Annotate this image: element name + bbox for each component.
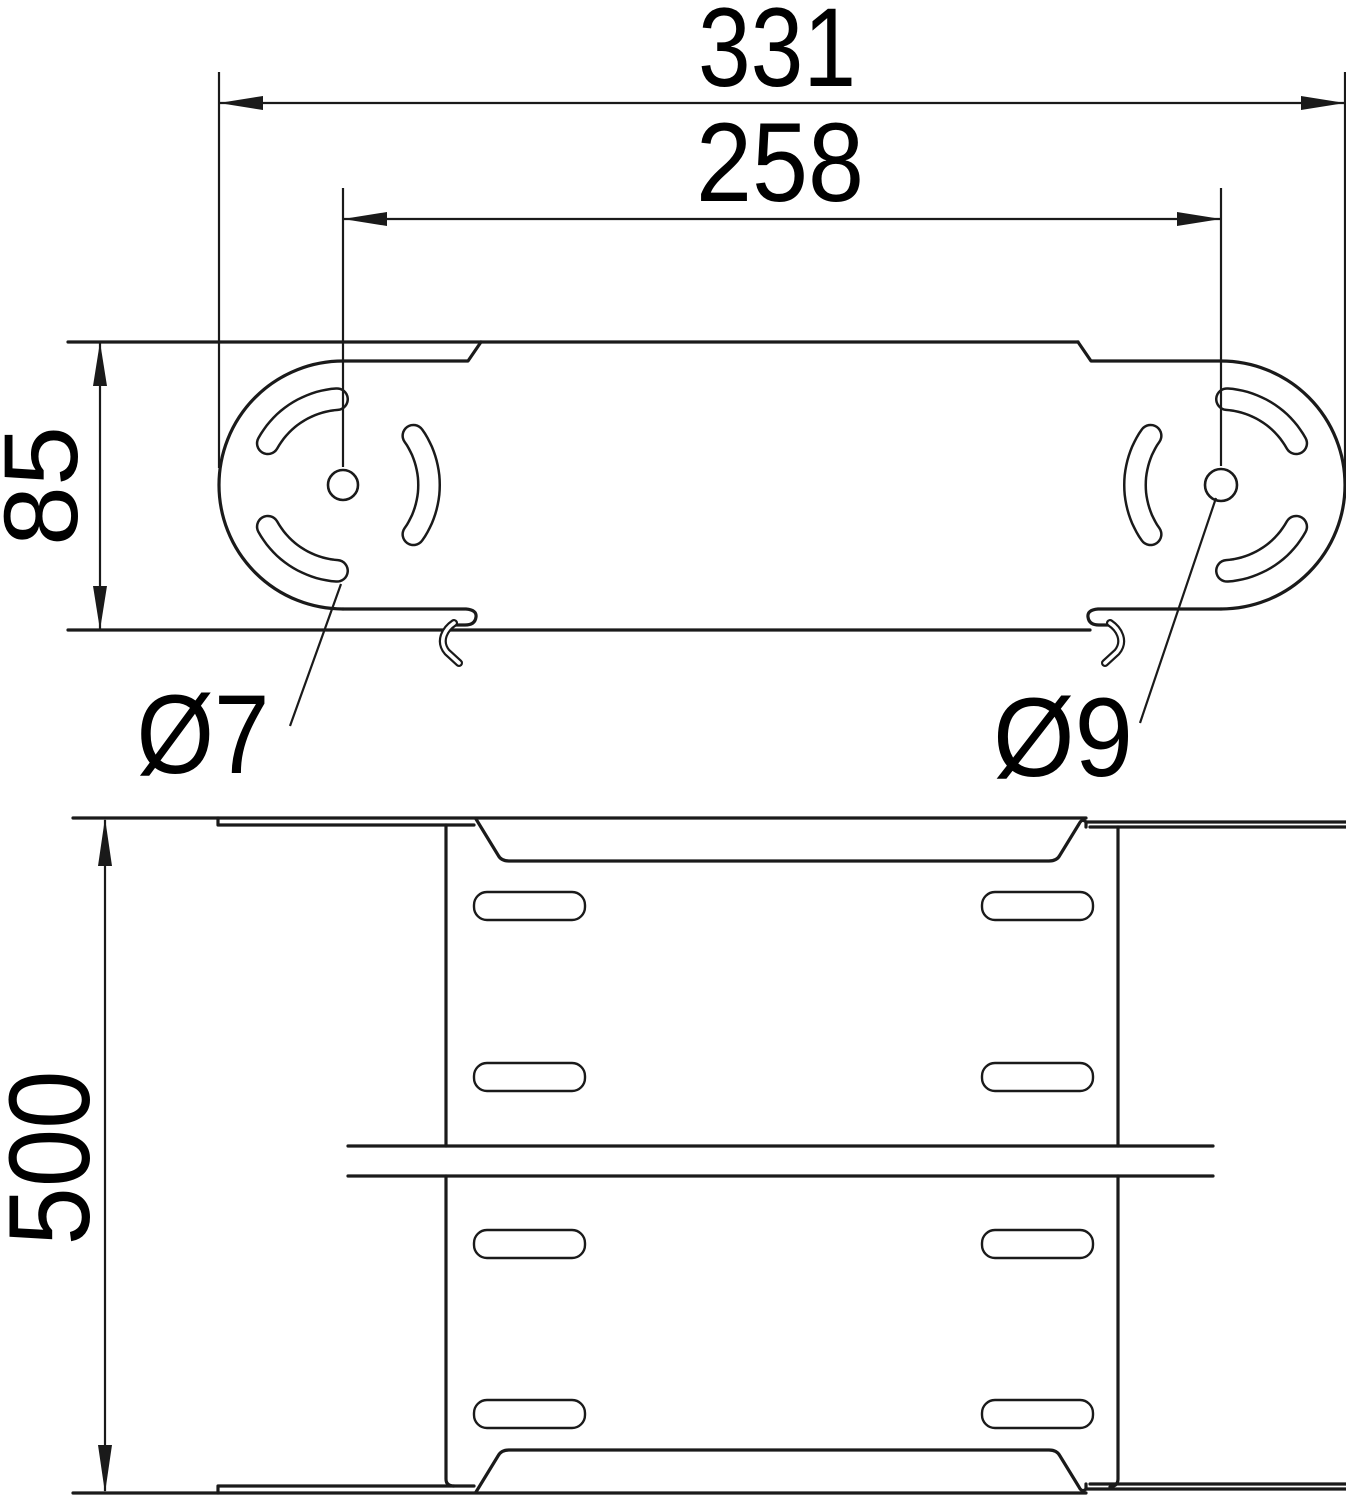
arrowhead-85-top [93,342,107,386]
arrowhead-258-left [343,212,387,226]
left-cap-slot-right-inner [413,436,429,535]
label-overall-length: 331 [698,0,856,110]
perforation-slot [982,1400,1093,1428]
tray-top-right-strip [1086,822,1346,827]
left-pivot-hole [328,470,358,500]
dimension-labels: 331 258 85 Ø7 Ø9 500 [0,0,1133,1246]
arrowhead-258-right [1177,212,1221,226]
perforation-slot [474,1230,585,1258]
dimension-drawing: 331 258 85 Ø7 Ø9 500 [0,0,1346,1500]
plate-top-left-flat [343,342,481,361]
tray-top-step [476,819,1086,861]
dimension-lines [93,72,1345,1493]
arrowhead-500-bottom [98,1445,112,1493]
perforation-slot [474,892,585,920]
arrowhead-85-bottom [93,586,107,630]
joint-band [348,1146,1213,1176]
tray-left-rail [446,825,454,1486]
curved-slot-group [268,399,1296,571]
label-plate-height: 85 [0,426,100,546]
perforation-slot [474,1400,585,1428]
drawing-canvas: 331 258 85 Ø7 Ø9 500 [0,0,1346,1500]
right-pivot-hole [1205,469,1237,501]
arrowhead-500-top [98,818,112,866]
label-tray-width: 500 [0,1071,114,1246]
arrowhead-331-left [219,96,263,110]
arrowhead-331-right [1301,96,1345,110]
perforation-slot-group [474,892,1093,1428]
perforation-slot [982,1230,1093,1258]
tray-right-rail [1110,827,1118,1487]
label-pivot-hole: Ø9 [993,675,1133,800]
right-cap-slot-left-inner [1135,436,1151,535]
label-slot-width: Ø7 [137,672,270,797]
perforation-slot [474,1063,585,1091]
label-hole-spacing: 258 [696,100,864,225]
perforation-slot [982,1063,1093,1091]
side-view-tray [73,818,1346,1493]
perforation-slot [982,892,1093,920]
top-view-plate [68,342,1345,663]
plate-top-right-jog [1078,342,1221,361]
tray-bottom-right-strip [1086,1484,1346,1489]
tray-bottom-step [476,1450,1086,1492]
